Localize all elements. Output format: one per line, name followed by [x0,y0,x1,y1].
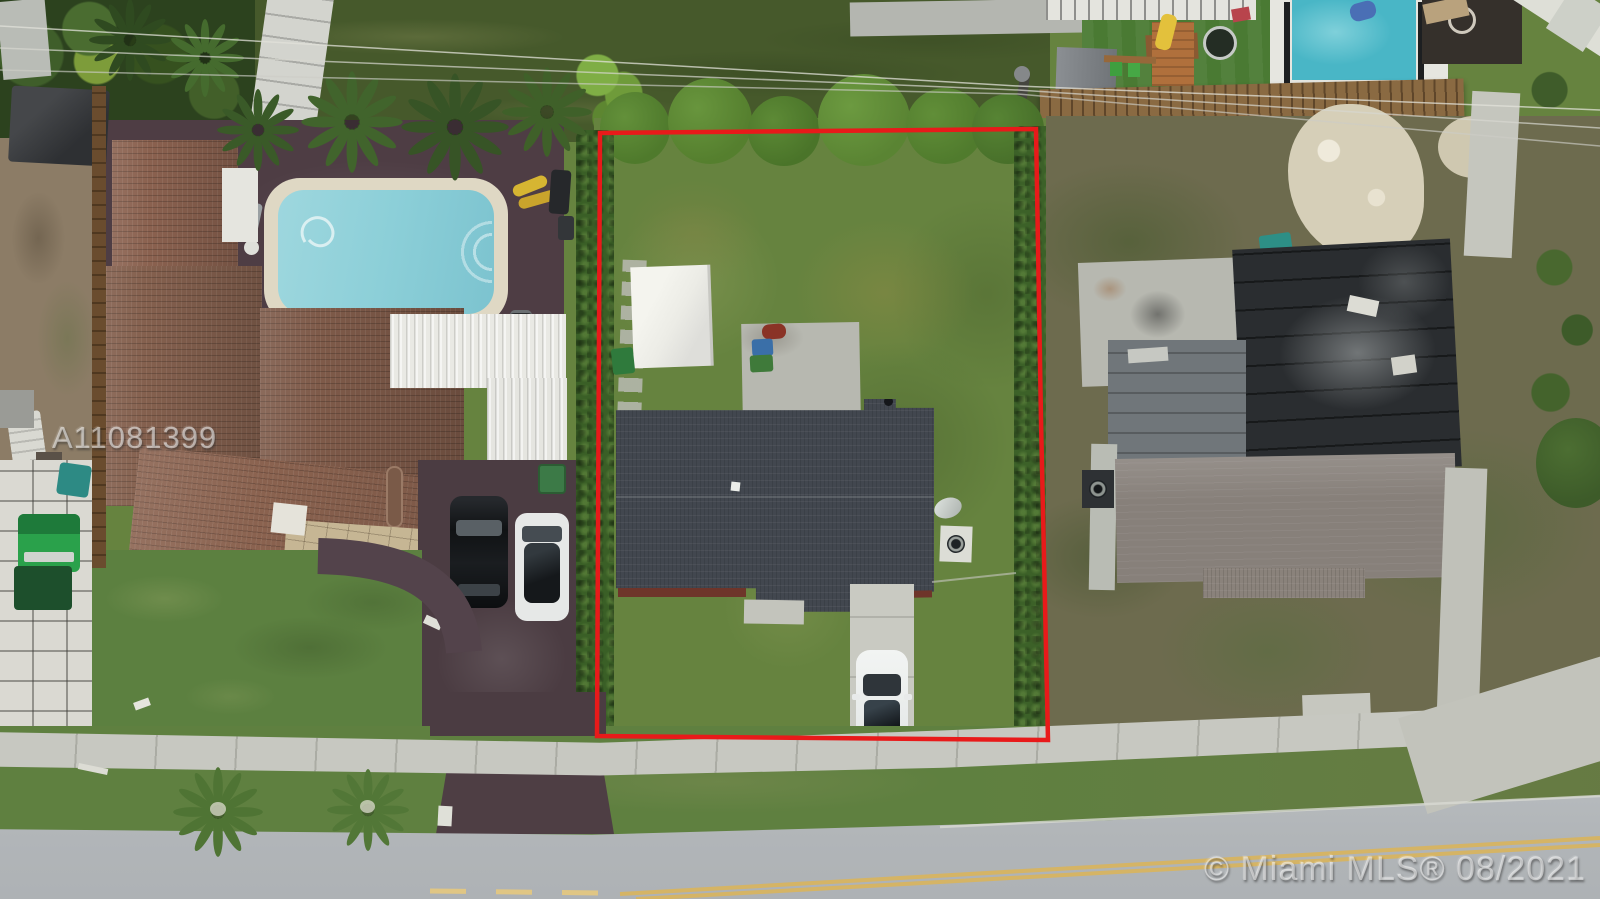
green-bin-shed [611,347,636,375]
car-panoramic-roof [524,543,560,603]
swing-seat [1128,63,1140,77]
roof-white-spot [1128,347,1169,364]
suv-rear-window [458,584,500,596]
backyard-tree [748,96,820,166]
side-table [244,240,259,255]
road-white-marking [437,806,452,827]
green-trash-bin-center [750,354,774,372]
ac-unit-right [1082,470,1114,508]
palm-tree [216,88,300,172]
jeep-windshield [24,552,74,562]
palm-tree [165,18,245,98]
house-wall-edge [1089,444,1118,590]
ac-fan [947,535,966,554]
center-house-roof [616,390,934,614]
asphalt-driveway-crossing-upper [430,692,606,736]
green-jeep [18,514,80,572]
palm-crown-spot [360,800,375,813]
motorcycle [548,169,571,214]
jeep-trailer [14,566,72,610]
listing-id-watermark: A11081399 [52,420,217,456]
car-mirror [904,694,912,700]
palm-crown-spot [210,802,226,816]
junk-gray-box [0,390,34,428]
gray-roof-left-wing [1108,340,1246,472]
trampoline [1203,26,1237,60]
pool-steps [442,208,492,296]
front-roof-step [1203,568,1365,598]
roof-debris-paper [1391,354,1417,375]
swale-palm [172,766,264,858]
ac-pad [939,525,972,562]
green-trash-bin [538,464,566,494]
boundary-hedge-left [576,130,614,744]
copyright-watermark: © Miami MLS® 08/2021 [1204,850,1586,889]
black-suv [450,496,508,608]
red-grill [762,323,787,340]
backyard-tree [818,74,910,166]
swing-seat [1110,62,1122,76]
wood-fence-left [92,86,106,568]
white-roof-strip [222,168,258,242]
teal-bin [56,462,92,498]
patio-stain [1129,289,1187,339]
front-walk [744,599,804,624]
roof-vent [731,482,741,492]
backyard-tree [668,78,752,164]
dark-equipment [558,216,574,240]
suv-windshield [456,520,502,536]
flat-roof-dark [1232,238,1462,477]
right-walkway [1437,467,1488,718]
pool-coping-dark [1284,2,1290,90]
rear-left-structure [0,0,51,80]
car-windshield [863,674,901,696]
palm-tree [300,70,404,174]
car-mirror [852,694,860,700]
white-car-left [515,513,569,621]
jeep-hood [18,514,80,534]
chimney [386,466,403,528]
pole-transformer [1014,66,1030,82]
white-shed [630,265,713,369]
roof-ridge-line [616,496,934,498]
asphalt-driveway-crossing-lower [436,770,614,834]
neighbor-roof-edge [1046,0,1256,20]
palm-tree [88,0,172,82]
patio-stain-rust [1092,275,1127,302]
car-windshield [522,526,562,542]
eave-fascia [618,588,746,597]
palm-tree [501,66,593,158]
front-lawn-left [92,550,422,738]
right-walkway-upper [1464,91,1521,258]
ac-fan-right [1089,480,1107,498]
white-metal-roof [390,314,566,388]
swale-palm [326,768,410,852]
front-shingle-roof-right [1115,453,1457,583]
aerial-photo: A11081399 © Miami MLS® 08/2021 [0,0,1600,899]
palm-tree [400,72,510,182]
entry-pad [271,502,308,535]
